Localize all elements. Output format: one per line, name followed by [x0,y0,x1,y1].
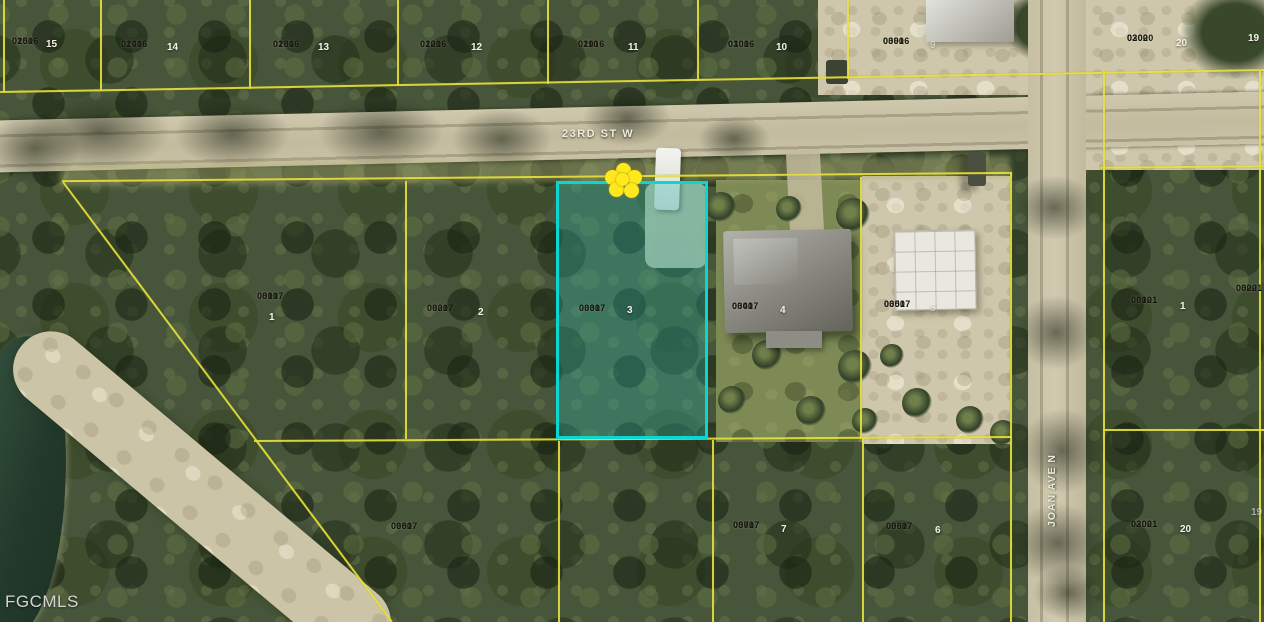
cleared-lot-construction [862,176,1010,444]
parcel-lot-number: 10 [776,42,787,53]
construction-equipment [826,60,848,84]
parcel-boundary-line [862,439,864,622]
palm-tree [836,198,870,232]
parcel-lot-number: 20 [1176,38,1187,49]
parcel-lot-number: 15 [46,39,57,50]
palm-tree [838,350,872,384]
parcel-boundary-line [397,0,399,86]
parcel-lot-number: 11 [628,42,639,53]
parcel-boundary-line [1103,429,1264,431]
palm-tree [776,196,802,222]
tree-shadow [698,116,770,162]
parcel-boundary-line [405,181,407,439]
palm-tree [796,396,826,426]
palm-tree [852,408,878,434]
parcel-boundary-line [100,0,102,91]
tree-shadow [318,96,443,168]
parcel-lot-number: 4 [780,305,786,316]
driveway [786,149,824,236]
parcel-lot-number: 13 [318,42,329,53]
parcel-boundary-line [847,0,849,79]
parcel-boundary-line [1103,70,1105,622]
house-porch [766,331,822,348]
street-label-23rd-st-w: 23RD ST W [562,128,634,140]
palm-tree [956,406,984,434]
parcel-boundary-line [547,0,549,84]
aerial-parcel-map[interactable]: 0201601501502016014014020160130130201601… [0,0,1264,622]
parcel-lot-number: 14 [167,42,178,53]
construction-equipment [968,152,986,186]
palm-tree [706,192,736,222]
parcel-boundary-line [697,0,699,81]
parcel-boundary-line [712,440,714,622]
palm-tree [880,344,904,368]
house-roof [723,229,853,333]
parcel-lot-number: 19 [1251,507,1262,518]
parcel-lot-number: 3 [627,305,633,316]
parcel-lot-number: 2 [478,307,484,318]
parcel-boundary-line [1259,70,1261,622]
tree-shadow [1033,565,1103,620]
parcel-boundary-line [249,0,251,89]
tree-shadow [175,100,290,168]
parcel-boundary-line [3,0,5,92]
mls-watermark: FGCMLS [5,592,79,612]
parcel-lot-number: 20 [1180,524,1191,535]
house-under-construction [926,0,1014,42]
tree-shadow [1016,295,1096,370]
parcel-boundary-line [860,177,862,439]
tree-shadow [1012,175,1097,240]
parcel-lot-number: 7 [781,524,787,535]
parcel-lot-number: 1 [269,312,275,323]
parcel-lot-number: 1 [1180,301,1186,312]
parcel-lot-number: 6 [935,525,941,536]
palm-tree [718,386,746,414]
parcel-boundary-line [1010,173,1012,622]
parcel-lot-number: 19 [1248,33,1259,44]
palm-tree [902,388,932,418]
parcel-lot-number: 9 [930,40,936,51]
parcel-lot-number: 12 [471,42,482,53]
tree-shadow [1020,408,1105,493]
palm-tree [990,420,1016,446]
parcel-boundary-line [558,441,560,622]
subject-marker-flower-icon [604,163,644,201]
parcel-lot-number: 5 [930,303,936,314]
tree-shadow [452,108,552,170]
street-label-joan-ave-n: JOAN AVE N [1046,441,1058,527]
